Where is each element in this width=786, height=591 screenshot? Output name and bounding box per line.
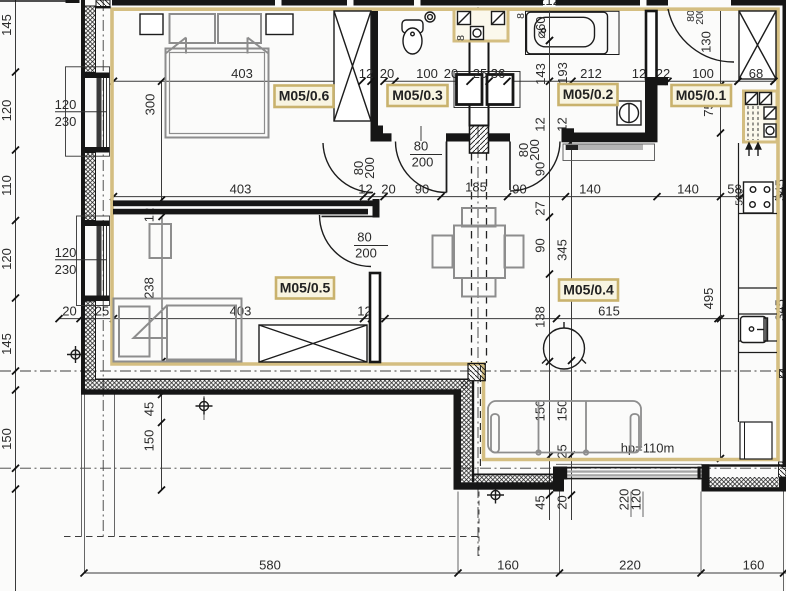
svg-text:M05/0.4: M05/0.4: [563, 282, 614, 298]
svg-text:M05/0.3: M05/0.3: [392, 87, 443, 103]
svg-text:580: 580: [259, 558, 281, 573]
svg-text:20: 20: [381, 181, 395, 196]
svg-text:12: 12: [358, 181, 372, 196]
svg-text:100: 100: [692, 66, 714, 81]
svg-text:20: 20: [555, 495, 570, 509]
svg-text:150: 150: [0, 428, 14, 450]
svg-text:120: 120: [0, 248, 14, 270]
svg-text:150: 150: [555, 400, 570, 422]
svg-text:100: 100: [416, 66, 438, 81]
svg-text:230: 230: [55, 262, 77, 277]
svg-text:300: 300: [143, 94, 158, 116]
svg-text:45: 45: [142, 402, 157, 416]
svg-text:230: 230: [55, 114, 77, 129]
svg-text:500: 500: [734, 188, 746, 206]
svg-text:20: 20: [62, 303, 76, 318]
svg-text:12: 12: [533, 117, 548, 131]
svg-text:495: 495: [701, 288, 716, 310]
svg-text:68: 68: [749, 66, 763, 81]
svg-text:M05/0.1: M05/0.1: [676, 87, 727, 103]
svg-text:20: 20: [380, 66, 394, 81]
svg-text:12: 12: [359, 66, 373, 81]
svg-text:25: 25: [473, 66, 487, 81]
svg-text:8: 8: [455, 35, 467, 41]
svg-text:M05/0.5: M05/0.5: [280, 280, 331, 296]
svg-text:36: 36: [491, 66, 505, 81]
svg-text:12: 12: [632, 66, 646, 81]
svg-text:345: 345: [555, 239, 570, 261]
svg-text:212: 212: [580, 66, 602, 81]
svg-text:220: 220: [619, 558, 641, 573]
svg-text:403: 403: [230, 181, 252, 196]
svg-text:25: 25: [555, 444, 570, 458]
svg-text:200: 200: [355, 246, 377, 261]
svg-text:M05/0.6: M05/0.6: [279, 88, 330, 104]
svg-text:M05/0.2: M05/0.2: [563, 86, 614, 102]
svg-text:615: 615: [598, 303, 620, 318]
svg-text:150: 150: [533, 400, 548, 422]
svg-text:138: 138: [533, 306, 548, 328]
svg-text:80: 80: [357, 230, 371, 245]
svg-text:120: 120: [629, 489, 644, 511]
svg-text:185: 185: [465, 179, 487, 194]
svg-text:90: 90: [533, 238, 548, 252]
svg-text:90: 90: [533, 162, 548, 176]
svg-text:200: 200: [527, 139, 542, 161]
svg-text:120: 120: [0, 100, 14, 122]
svg-text:160: 160: [497, 558, 519, 573]
svg-text:120: 120: [55, 245, 77, 260]
svg-text:110: 110: [0, 175, 14, 196]
svg-text:200: 200: [362, 157, 377, 179]
svg-text:200: 200: [412, 155, 434, 170]
svg-text:⌀60: ⌀60: [533, 16, 548, 38]
svg-text:140: 140: [579, 181, 601, 196]
svg-text:145: 145: [0, 14, 14, 36]
svg-text:150: 150: [142, 430, 157, 452]
svg-text:160: 160: [743, 558, 765, 573]
svg-text:403: 403: [231, 66, 253, 81]
svg-text:193: 193: [555, 62, 570, 84]
svg-text:145: 145: [0, 333, 14, 355]
svg-text:120: 120: [55, 97, 77, 112]
svg-text:130: 130: [699, 31, 714, 53]
svg-text:143: 143: [533, 63, 548, 85]
svg-text:238: 238: [142, 277, 157, 299]
svg-text:45: 45: [533, 495, 548, 509]
svg-text:27: 27: [533, 201, 548, 215]
svg-text:140: 140: [677, 181, 699, 196]
